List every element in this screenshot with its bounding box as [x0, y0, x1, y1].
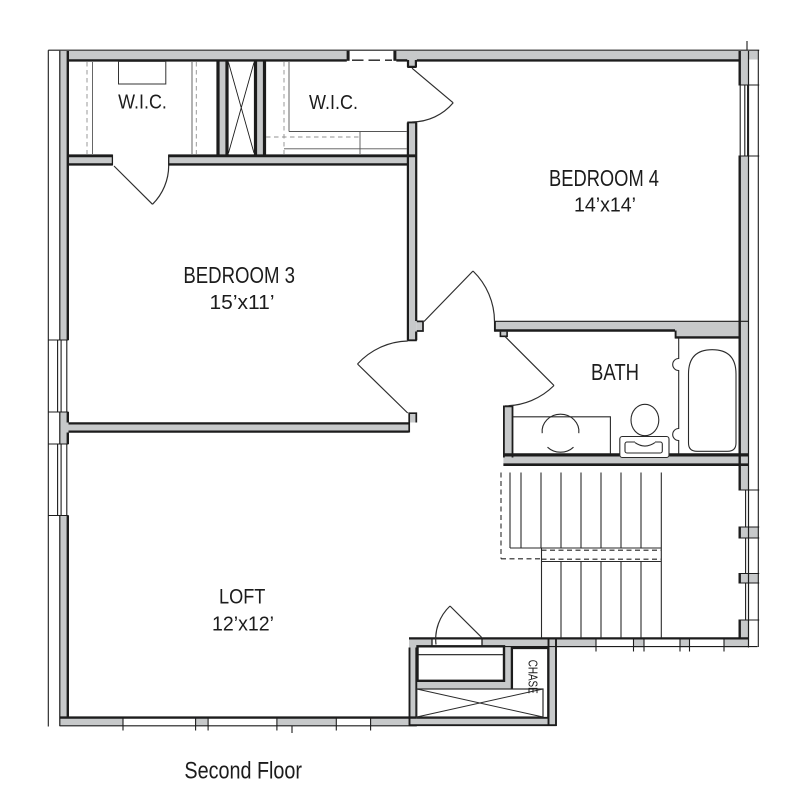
svg-text:12’x12’: 12’x12’: [212, 613, 274, 635]
svg-text:BEDROOM 3: BEDROOM 3: [183, 262, 295, 288]
svg-text:BEDROOM 4: BEDROOM 4: [549, 165, 659, 191]
svg-text:15’x11’: 15’x11’: [210, 292, 275, 314]
svg-text:CHASE: CHASE: [526, 660, 541, 694]
svg-text:LOFT: LOFT: [219, 585, 266, 608]
svg-text:W.I.C.: W.I.C.: [309, 92, 358, 114]
svg-text:Second Floor: Second Floor: [184, 758, 302, 785]
svg-text:14’x14’: 14’x14’: [574, 194, 636, 216]
svg-text:BATH: BATH: [591, 359, 639, 385]
svg-text:W.I.C.: W.I.C.: [118, 92, 167, 114]
